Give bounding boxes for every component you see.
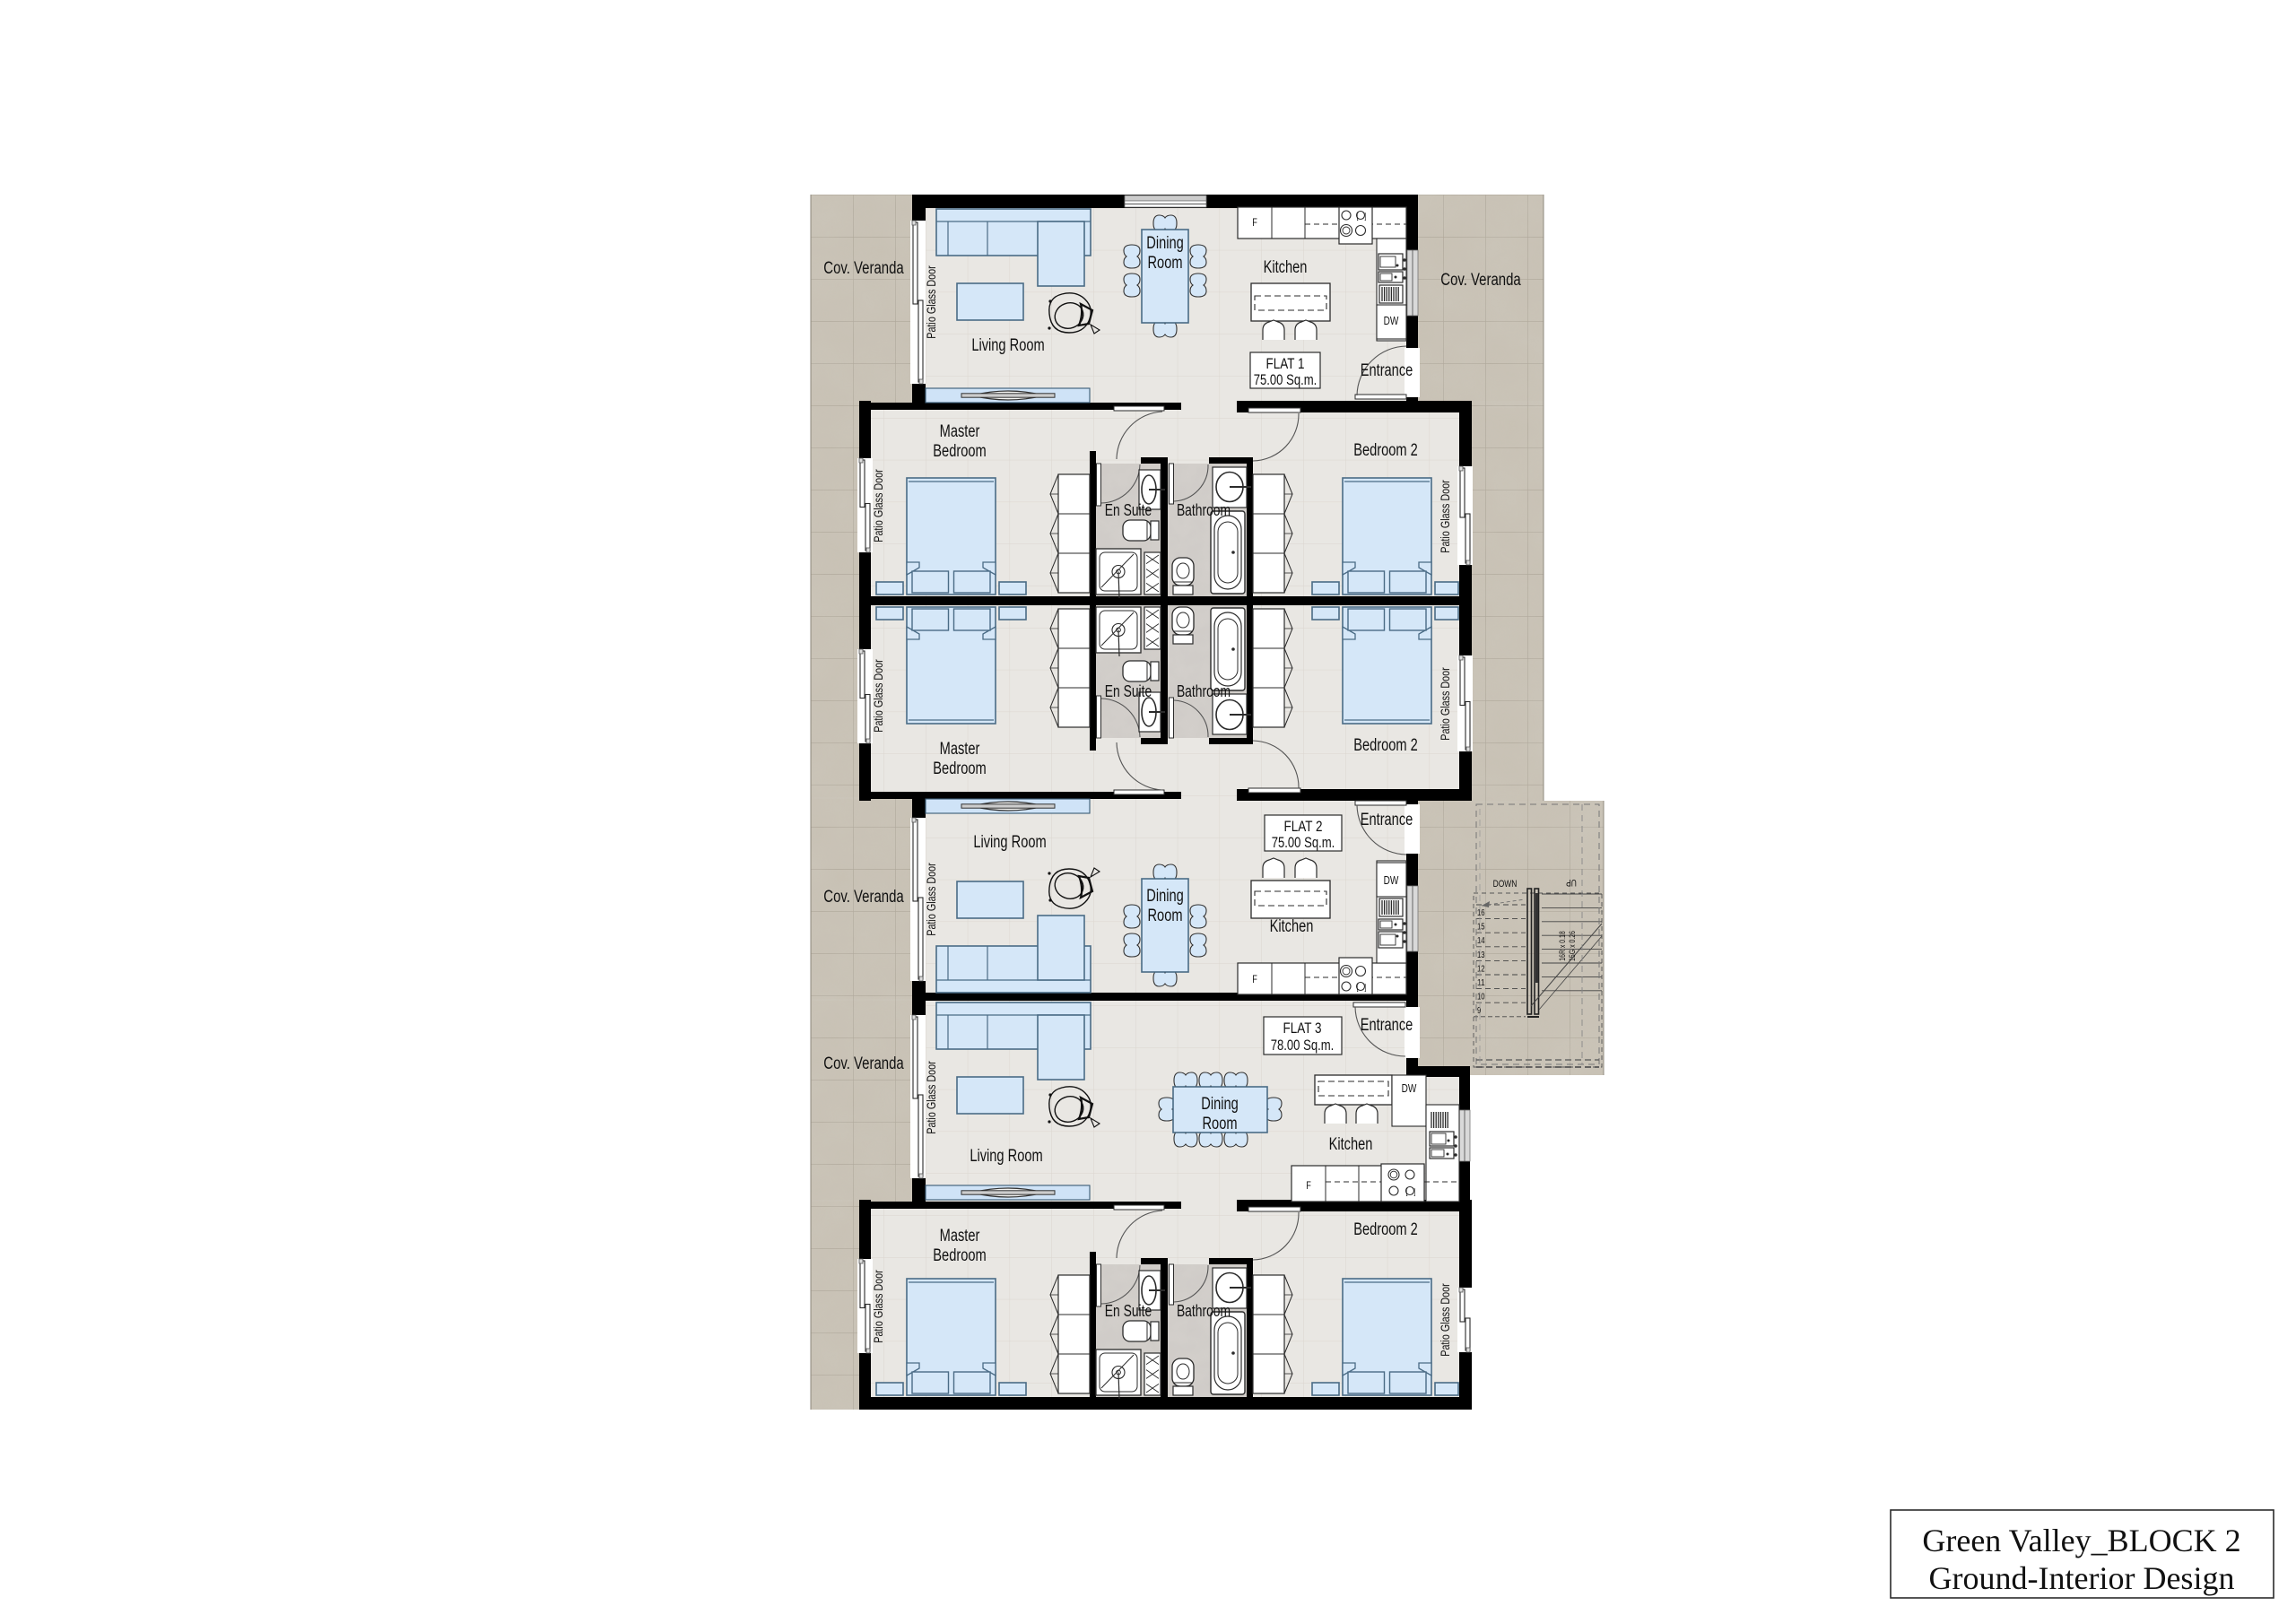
svg-text:DW: DW	[1384, 314, 1399, 327]
svg-text:Entrance: Entrance	[1361, 361, 1413, 380]
svg-text:15: 15	[1477, 923, 1485, 933]
svg-text:Bathroom: Bathroom	[1177, 501, 1231, 519]
svg-text:Patio Glass Door: Patio Glass Door	[924, 265, 938, 339]
svg-text:Green Valley_BLOCK 2: Green Valley_BLOCK 2	[1922, 1523, 2240, 1558]
svg-text:14: 14	[1477, 936, 1485, 946]
svg-text:Master: Master	[940, 740, 980, 759]
svg-text:Patio Glass Door: Patio Glass Door	[924, 1061, 938, 1134]
svg-text:Dining: Dining	[1146, 887, 1184, 906]
svg-text:75.00 Sq.m.: 75.00 Sq.m.	[1254, 371, 1318, 388]
svg-text:FLAT 2: FLAT 2	[1284, 818, 1323, 835]
svg-text:Room: Room	[1148, 254, 1183, 273]
svg-text:F: F	[1306, 1179, 1311, 1192]
svg-text:Patio Glass Door: Patio Glass Door	[871, 659, 885, 733]
svg-text:]: ]	[1365, 212, 1367, 221]
svg-text:F: F	[1252, 973, 1257, 985]
svg-text:En Suite: En Suite	[1105, 1302, 1152, 1320]
svg-text:Cov. Veranda: Cov. Veranda	[1440, 271, 1521, 290]
svg-text:FLAT 1: FLAT 1	[1266, 355, 1305, 372]
svg-text:12: 12	[1477, 964, 1485, 974]
svg-text:Kitchen: Kitchen	[1264, 258, 1308, 277]
svg-text:Entrance: Entrance	[1361, 811, 1413, 829]
svg-text:FLAT 3: FLAT 3	[1283, 1020, 1322, 1037]
svg-text:Room: Room	[1148, 907, 1183, 925]
svg-text:11: 11	[1477, 978, 1485, 988]
svg-text:10: 10	[1477, 993, 1485, 1002]
svg-text:F: F	[1252, 216, 1257, 229]
svg-text:Cov. Veranda: Cov. Veranda	[823, 888, 904, 907]
svg-text:16R x 0.18: 16R x 0.18	[1558, 931, 1567, 961]
svg-text:Patio Glass Door: Patio Glass Door	[871, 469, 885, 542]
svg-text:Entrance: Entrance	[1361, 1016, 1413, 1035]
svg-text:Dining: Dining	[1201, 1095, 1239, 1114]
svg-text:Kitchen: Kitchen	[1329, 1135, 1373, 1154]
svg-text:Patio Glass Door: Patio Glass Door	[1438, 667, 1452, 741]
svg-text:16: 16	[1477, 908, 1485, 918]
svg-text:Patio Glass Door: Patio Glass Door	[1438, 1283, 1452, 1357]
svg-text:DW: DW	[1402, 1081, 1417, 1095]
svg-text:Dining: Dining	[1146, 234, 1184, 253]
svg-text:DOWN: DOWN	[1493, 879, 1518, 890]
svg-text:UP: UP	[1566, 877, 1577, 888]
svg-text:Patio Glass Door: Patio Glass Door	[1438, 480, 1452, 553]
svg-text:En Suite: En Suite	[1105, 501, 1152, 519]
svg-text:78.00 Sq.m.: 78.00 Sq.m.	[1271, 1037, 1335, 1054]
svg-text:Room: Room	[1203, 1115, 1238, 1133]
svg-text:Bedroom 2: Bedroom 2	[1353, 441, 1418, 460]
svg-text:75.00 Sq.m.: 75.00 Sq.m.	[1272, 834, 1335, 851]
svg-text:Living Room: Living Room	[973, 833, 1046, 852]
svg-text:Bedroom: Bedroom	[933, 1246, 986, 1265]
svg-text:Ground-Interior Design: Ground-Interior Design	[1929, 1560, 2235, 1596]
svg-text:9: 9	[1477, 1006, 1482, 1016]
svg-text:Patio Glass Door: Patio Glass Door	[924, 863, 938, 936]
svg-text:Cov. Veranda: Cov. Veranda	[823, 259, 904, 278]
svg-text:Living Room: Living Room	[971, 336, 1044, 355]
svg-text:Kitchen: Kitchen	[1270, 917, 1314, 936]
svg-text:]: ]	[1365, 983, 1367, 992]
svg-text:DW: DW	[1384, 873, 1399, 887]
svg-text:Living Room: Living Room	[970, 1147, 1042, 1166]
svg-text:Bedroom 2: Bedroom 2	[1353, 1220, 1418, 1239]
svg-text:15G x 0.26: 15G x 0.26	[1568, 931, 1577, 961]
svg-text:Bathroom: Bathroom	[1177, 1302, 1231, 1320]
svg-text:Bedroom: Bedroom	[933, 442, 986, 461]
svg-text:13: 13	[1477, 950, 1485, 960]
svg-text:En Suite: En Suite	[1105, 682, 1152, 700]
svg-text:Master: Master	[940, 422, 980, 441]
svg-text:Bedroom: Bedroom	[933, 759, 986, 778]
svg-text:Master: Master	[940, 1227, 980, 1245]
svg-text:Patio Glass Door: Patio Glass Door	[871, 1270, 885, 1343]
svg-text:]: ]	[1414, 1187, 1416, 1196]
svg-text:Bathroom: Bathroom	[1177, 682, 1231, 700]
svg-text:Cov. Veranda: Cov. Veranda	[823, 1055, 904, 1073]
svg-text:Bedroom 2: Bedroom 2	[1353, 736, 1418, 755]
